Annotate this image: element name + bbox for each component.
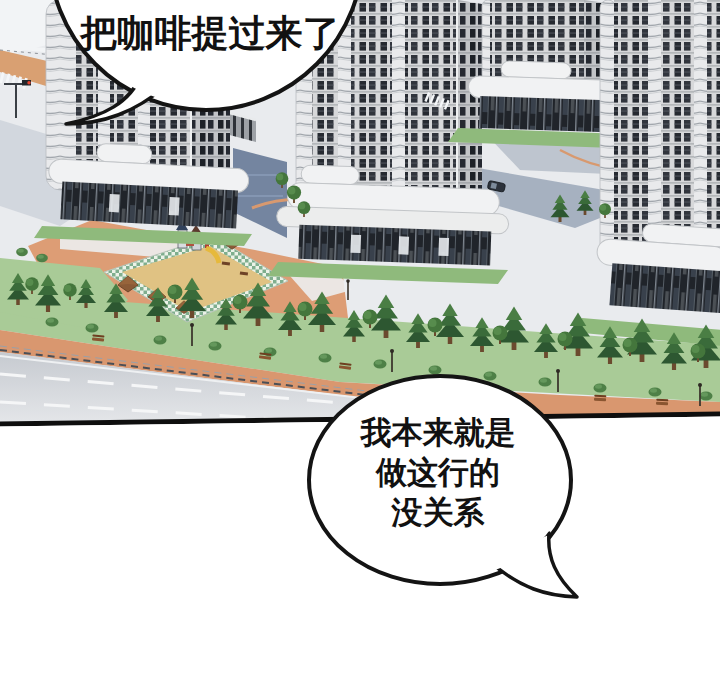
storefront [479, 96, 608, 132]
speech-text-bottom-line1: 我本来就是 [360, 414, 516, 450]
tower-side [458, 0, 482, 214]
comic-panel-scene: 把咖啡提过来了 我本来就是 做这行的 没关系 [0, 0, 720, 700]
speech-text-bottom-line2: 做这行的 [375, 454, 500, 490]
speech-text-top: 把咖啡提过来了 [79, 12, 340, 55]
storefront [609, 263, 720, 313]
comic-panel: 把咖啡提过来了 我本来就是 做这行的 没关系 [0, 0, 720, 700]
storefront [298, 225, 491, 266]
balcony-column [600, 0, 616, 254]
speech-text-bottom-line3: 没关系 [391, 494, 485, 530]
